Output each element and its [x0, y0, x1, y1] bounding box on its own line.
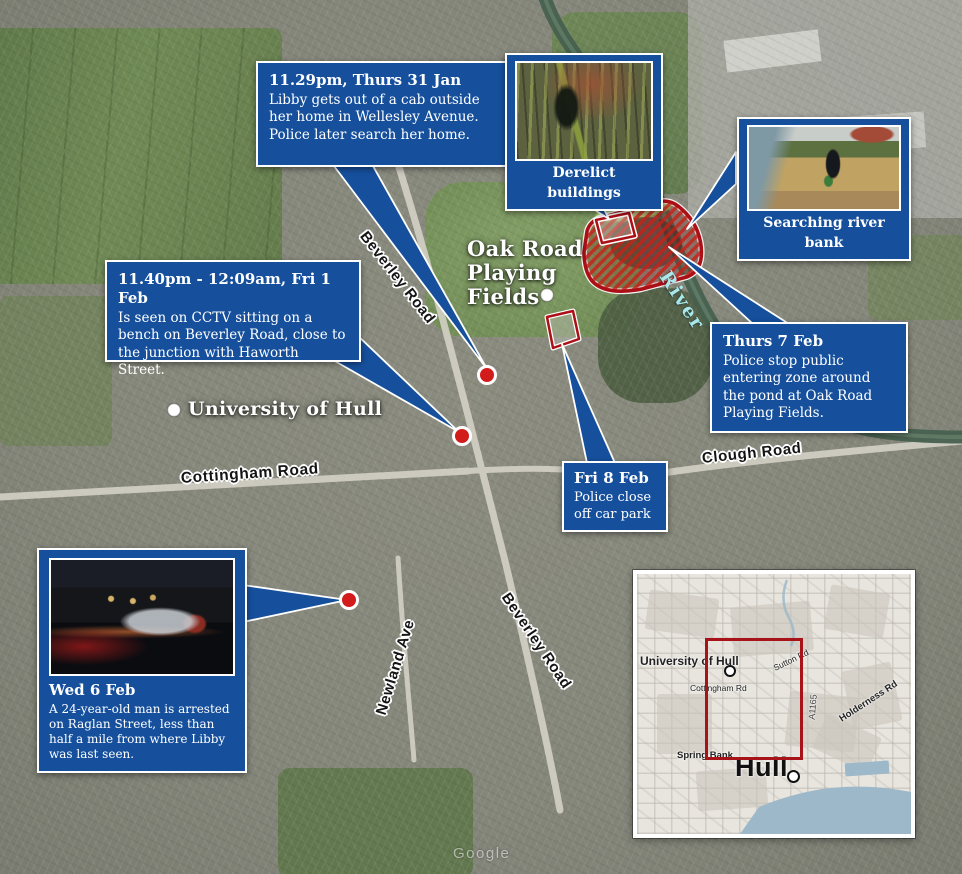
- oak-road-playing-fields-label: Oak Road Playing Fields: [467, 237, 583, 309]
- inset-highlight-rectangle: [705, 638, 803, 760]
- callout-title: 11.29pm, Thurs 31 Jan: [269, 71, 499, 90]
- green-fields-patch: [0, 28, 282, 284]
- inset-university-marker: [724, 665, 736, 677]
- humber-estuary: [740, 787, 911, 834]
- callout-body: Police close off car park: [574, 490, 656, 524]
- callout-title: Thurs 7 Feb: [723, 332, 895, 351]
- callout-pond-zone: Thurs 7 Feb Police stop public entering …: [710, 322, 908, 433]
- photo-caption: Searching river bank: [747, 214, 901, 253]
- callout-arrest: Wed 6 Feb A 24-year-old man is arrested …: [37, 548, 247, 773]
- google-watermark: Google: [453, 845, 510, 862]
- callout-title: 11.40pm - 12:09am, Fri 1 Feb: [118, 270, 348, 308]
- callout-searching-river-bank: Searching river bank: [737, 117, 911, 261]
- inset-river-line: [783, 580, 793, 646]
- crime-timeline-map: Oak Road Playing Fields University of Hu…: [0, 0, 962, 874]
- derelict-buildings-photo: [515, 61, 653, 161]
- river-bank-search-photo: [747, 125, 901, 211]
- callout-body: Police stop public entering zone around …: [723, 353, 895, 423]
- dock-water: [845, 760, 890, 776]
- callout-body: Is seen on CCTV sitting on a bench on Be…: [118, 310, 348, 380]
- callout-car-park: Fri 8 Feb Police close off car park: [562, 461, 668, 532]
- callout-body: A 24-year-old man is arrested on Raglan …: [49, 702, 235, 763]
- inset-hull-marker: [787, 770, 800, 783]
- callout-title: Fri 8 Feb: [574, 469, 656, 488]
- callout-title: Wed 6 Feb: [49, 681, 235, 700]
- oak-road-label-line2: Playing: [467, 261, 583, 285]
- photo-caption: Derelict buildings: [515, 164, 653, 203]
- oak-road-label-line1: Oak Road: [467, 237, 583, 261]
- callout-cctv-bench: 11.40pm - 12:09am, Fri 1 Feb Is seen on …: [105, 260, 361, 362]
- oak-road-label-line3: Fields: [467, 285, 583, 309]
- arrest-scene-photo: [49, 558, 235, 676]
- inset-overview-map: University of Hull Cottingham Rd Sutton …: [633, 570, 915, 838]
- green-field-patch: [0, 296, 112, 446]
- park-patch: [278, 768, 473, 874]
- callout-derelict-buildings: Derelict buildings: [505, 53, 663, 211]
- university-of-hull-label: University of Hull: [188, 399, 382, 421]
- callout-cab-home: 11.29pm, Thurs 31 Jan Libby gets out of …: [256, 61, 512, 167]
- callout-body: Libby gets out of a cab outside her home…: [269, 92, 499, 145]
